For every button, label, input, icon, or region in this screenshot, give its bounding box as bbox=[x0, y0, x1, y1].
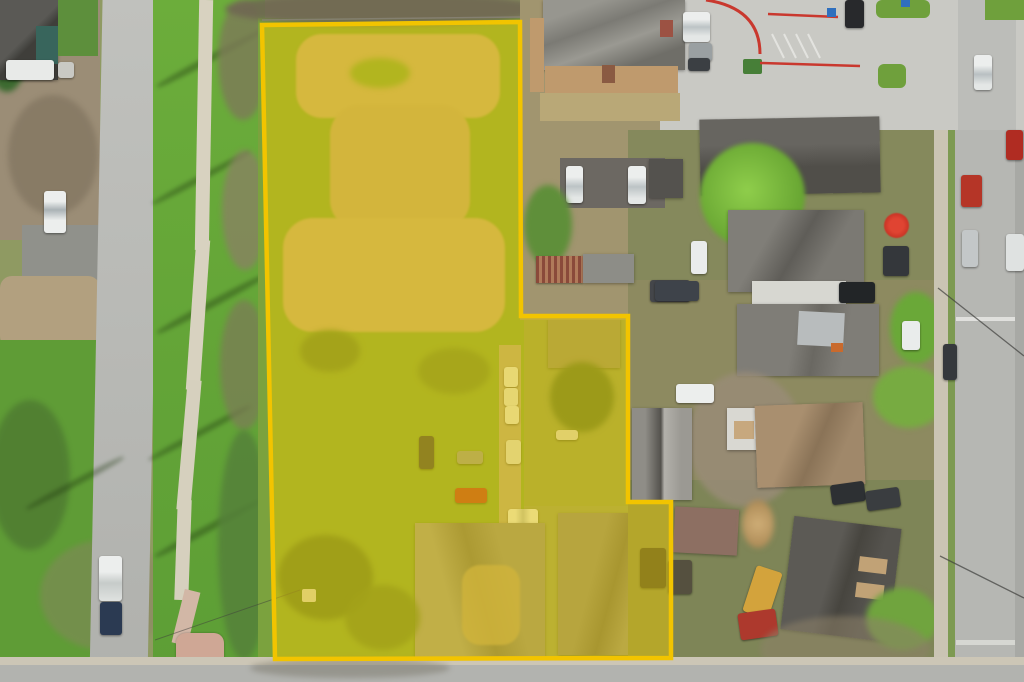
property-boundary-overlay bbox=[0, 0, 1024, 682]
aerial-photo bbox=[0, 0, 1024, 682]
property-boundary-polygon bbox=[262, 22, 671, 659]
